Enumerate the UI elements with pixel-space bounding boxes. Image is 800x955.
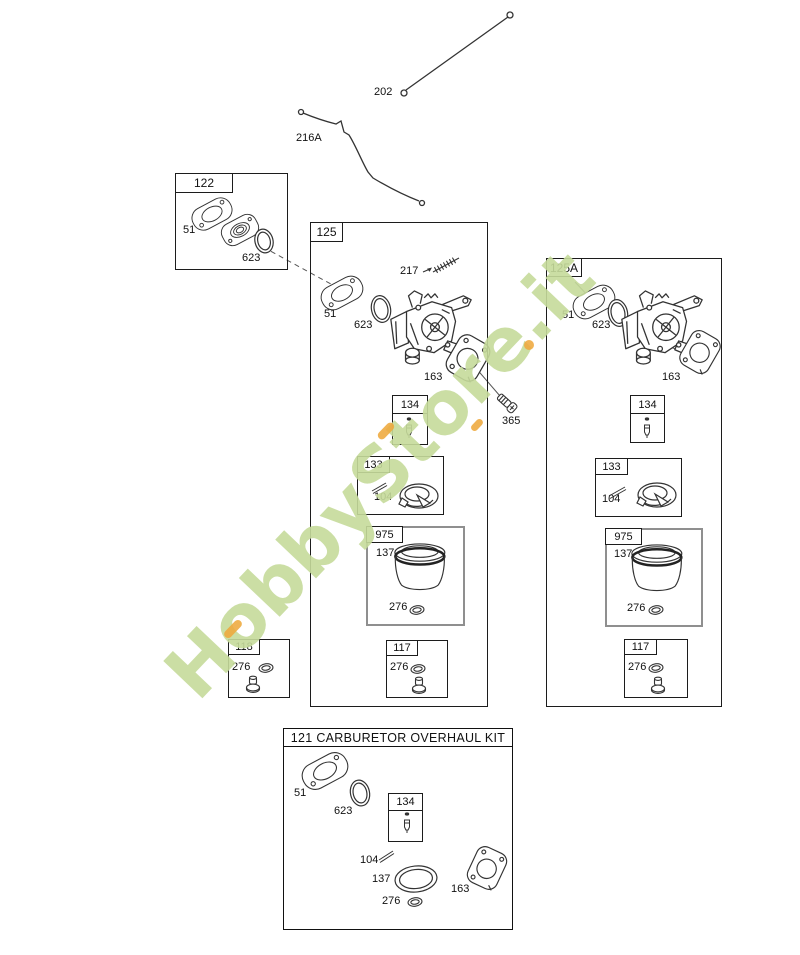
screw-box-125-label: 117 <box>386 640 418 656</box>
needle-box-125a-label: 134 <box>631 396 664 414</box>
part-label-365: 365 <box>502 416 520 427</box>
box-125-label-text: 125 <box>316 225 336 239</box>
part-label-276-975-125: 276 <box>389 602 407 613</box>
part-label-276-975-125a: 276 <box>627 603 645 614</box>
bowl-box-125a-label: 975 <box>605 528 642 545</box>
part-label-137-125: 137 <box>376 548 394 559</box>
needle-box-125: 134 <box>392 395 428 445</box>
float-box-125-label: 133 <box>357 456 390 473</box>
float-box-125a-label-text: 133 <box>602 461 620 473</box>
bolt-365-drawing <box>496 392 518 413</box>
part-label-104-125: 104 <box>374 492 392 503</box>
part-label-137-125a: 137 <box>614 549 632 560</box>
group-box-125a-label: 125A <box>546 258 582 277</box>
needle-box-121-label-text: 134 <box>396 796 414 808</box>
bowl-box-125a-label-text: 975 <box>614 531 632 543</box>
group-box-122-label: 122 <box>175 173 233 193</box>
needle-box-125a: 134 <box>630 395 665 443</box>
needle-box-125a-label-text: 134 <box>638 399 656 411</box>
part-label-623-122: 623 <box>242 253 260 264</box>
box-125a-label-text: 125A <box>550 261 578 275</box>
needle-box-125-label: 134 <box>393 396 427 414</box>
group-box-118-label: 118 <box>228 639 260 655</box>
part-label-276-117-125a: 276 <box>628 662 646 673</box>
box-118-label-text: 118 <box>235 641 253 653</box>
part-label-623-121: 623 <box>334 806 352 817</box>
part-label-623-125: 623 <box>354 320 372 331</box>
part-label-216a: 216A <box>296 133 322 144</box>
overhaul-kit-title: 121 CARBURETOR OVERHAUL KIT <box>284 729 512 747</box>
needle-box-125-label-text: 134 <box>401 399 419 411</box>
screw-box-125a-label: 117 <box>624 639 657 655</box>
bowl-box-125-label-text: 975 <box>375 529 393 541</box>
part-label-163-125a: 163 <box>662 372 680 383</box>
bowl-box-125-label: 975 <box>366 526 403 543</box>
part-label-276-121: 276 <box>382 896 400 907</box>
part-label-623-125a: 623 <box>592 320 610 331</box>
parts-diagram-page: 122 125 134 133 975 117 118 125A 134 133… <box>0 0 800 955</box>
rod-216a-drawing <box>299 110 425 206</box>
rod-202-drawing <box>401 12 513 96</box>
float-box-125-label-text: 133 <box>364 459 382 471</box>
watermark-i-dot <box>524 340 534 350</box>
part-label-51-125a: 51 <box>562 310 574 321</box>
group-box-125-label: 125 <box>310 222 343 242</box>
part-label-202: 202 <box>374 87 392 98</box>
part-label-217: 217 <box>400 266 418 277</box>
part-label-51-125: 51 <box>324 309 336 320</box>
watermark-accent-dash-1 <box>222 618 243 639</box>
needle-box-121: 134 <box>388 793 423 842</box>
part-label-104-121: 104 <box>360 855 378 866</box>
part-label-104-125a: 104 <box>602 494 620 505</box>
needle-box-121-label: 134 <box>389 794 422 811</box>
box-122-label-text: 122 <box>194 176 214 190</box>
part-label-163-125: 163 <box>424 372 442 383</box>
part-label-276-117-125: 276 <box>390 662 408 673</box>
part-label-163-121: 163 <box>451 884 469 895</box>
screw-box-125a-label-text: 117 <box>632 641 650 653</box>
overhaul-kit-title-text: 121 CARBURETOR OVERHAUL KIT <box>291 731 505 745</box>
part-label-137-121: 137 <box>372 874 390 885</box>
part-label-276-118: 276 <box>232 662 250 673</box>
part-label-51-121: 51 <box>294 788 306 799</box>
float-box-125a-label: 133 <box>595 458 628 475</box>
screw-box-125-label-text: 117 <box>393 642 411 654</box>
part-label-51-122: 51 <box>183 225 195 236</box>
